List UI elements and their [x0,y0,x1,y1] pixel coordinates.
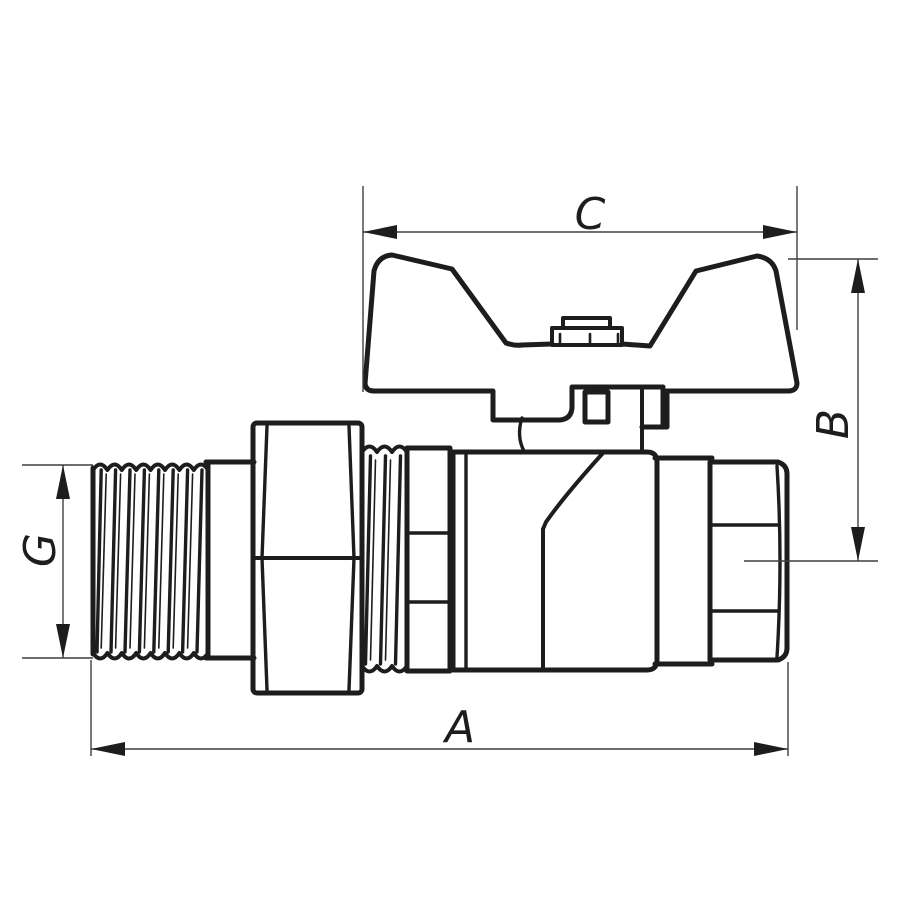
collar-outline [206,462,254,658]
dimension-b: B [744,259,878,561]
valve-body [453,418,657,670]
body-thread-section [362,447,407,672]
valve-technical-drawing: C B G A [0,0,900,900]
male-threaded-end [93,465,208,659]
male-thread-crest-top [93,465,208,471]
dim-b-label: B [808,409,859,439]
dim-a-arrow-right [754,742,788,756]
butterfly-handle [365,255,797,452]
dim-b-arrow-bottom [851,527,865,561]
dim-a-label: A [442,702,475,753]
dim-g-arrow-bottom [56,624,70,658]
dim-c-label: C [575,189,606,240]
drawing-canvas: C B G A [0,0,900,900]
dim-c-arrow-left [363,225,397,239]
valve-body-outline [453,452,657,670]
dimension-a: A [91,660,788,756]
hex-collar [407,448,450,671]
body-thread-crest-top [362,447,407,453]
valve-body-section-curve [543,453,603,668]
union-nut [253,423,362,693]
hex-collar-body [407,448,450,671]
dim-a-extension-lines [91,660,788,756]
dim-g-label: G [15,533,66,567]
dim-g-arrow-top [56,465,70,499]
handle-left-wing [365,255,552,384]
handle-screw-cap-top [563,318,610,328]
body-thread-crest-bottom [362,666,407,672]
female-nut-hex-edges [710,525,778,611]
hex-collar-edges [407,533,450,602]
dimension-c: C [363,186,797,392]
handle-bottom-and-hub [365,384,663,427]
dim-b-arrow-top [851,259,865,293]
dimension-g: G [15,465,93,658]
stem-rectangle [585,392,608,422]
collar-section [206,462,254,658]
outlet-section-edges [655,458,712,664]
male-thread-crest-bottom [93,653,208,659]
handle-screw-cap-ticks [560,334,618,344]
handle-screw-cap-base [552,328,622,345]
dim-a-arrow-left [91,742,125,756]
dim-c-arrow-right [763,225,797,239]
outlet-section [655,458,712,664]
stem-neck-curve [520,418,524,451]
handle-right-wing [622,256,797,427]
